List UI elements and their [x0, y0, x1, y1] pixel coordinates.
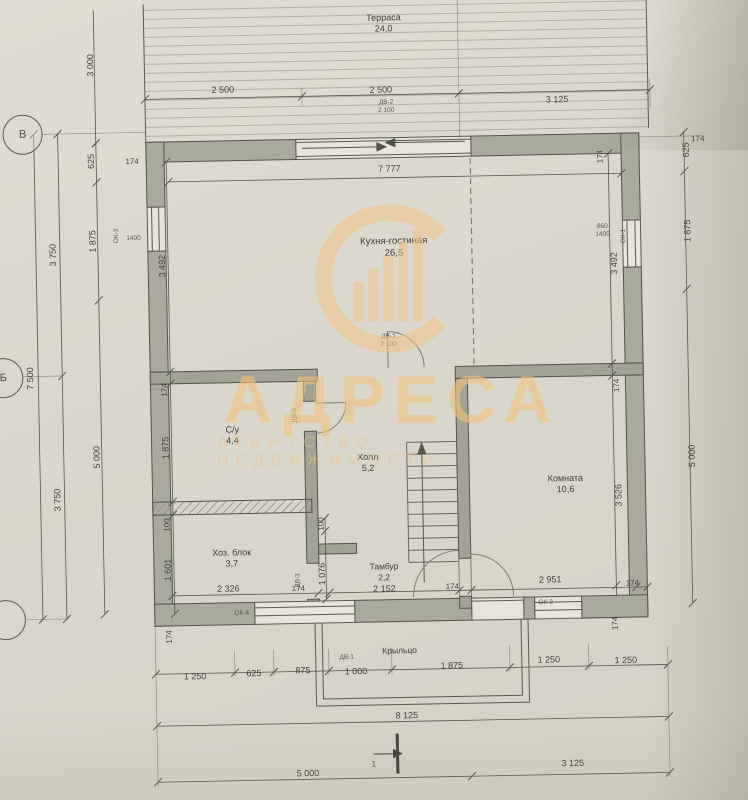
dimension-label: 100 — [316, 517, 325, 531]
dimension-label: 1 250 — [614, 655, 637, 666]
dimension-label: 1 875 — [87, 230, 98, 253]
dimension-label: 5 000 — [687, 445, 698, 468]
room-area: 4,4 — [226, 436, 240, 448]
opening-tag-label: 860 — [597, 223, 608, 231]
opening-tag-label: ДВ-3 — [291, 408, 299, 423]
dimension-label: 174 — [165, 630, 174, 644]
room-area: 26,5 — [360, 247, 427, 260]
dimension-label: 1 — [371, 759, 376, 768]
opening-tag-label: ОК-4 — [234, 610, 249, 618]
opening-tag-label: 2 100 — [380, 341, 396, 349]
opening-tag-label: ДВ-1 — [381, 333, 396, 341]
room-name: Крыльцо — [382, 645, 417, 656]
room-label: Комната10,6 — [548, 473, 584, 496]
dimension-label: 174 — [691, 134, 705, 143]
dimension-label: 1 250 — [537, 654, 560, 665]
dimension-label: 1 875 — [682, 220, 693, 243]
floorplan-photo: 2 5002 5003 1253 0007 7777 5003 7503 750… — [0, 0, 748, 800]
stairs-direction-arrow — [418, 443, 429, 582]
room-name: Комната — [548, 473, 583, 485]
room-label: Кухня-гостиная26,5 — [360, 235, 428, 260]
room-area: 24,0 — [366, 23, 401, 35]
dimension-label: 174 — [612, 379, 621, 393]
dimension-label: 3 492 — [157, 255, 168, 278]
dimension-label: 3 492 — [609, 252, 620, 275]
dimension-label: 3 750 — [48, 244, 59, 267]
dimension-label: 625 — [681, 142, 692, 157]
dimension-label: 174 — [595, 150, 604, 164]
dimension-label: 625 — [86, 154, 97, 169]
room-area: 10,6 — [548, 484, 583, 496]
room-name: Кухня-гостиная — [360, 235, 427, 248]
opening-tag-label: 1400 — [126, 235, 141, 243]
dimension-label: 1 875 — [441, 660, 464, 671]
dimension-label: 5 000 — [297, 768, 320, 779]
dimension-label: 3 125 — [561, 758, 584, 769]
room-label: Хоз. блок3,7 — [212, 547, 251, 570]
room-label: Холл5,2 — [357, 452, 379, 475]
section-mark — [373, 734, 402, 775]
dimension-label: 2 326 — [217, 583, 240, 594]
room-area: 2,2 — [370, 572, 399, 583]
dimension-label: 3 750 — [52, 489, 63, 512]
opening-tag-label: ОК-2 — [538, 599, 553, 607]
dimension-label: 2 500 — [211, 84, 234, 95]
room-name: Холл — [357, 452, 378, 464]
partition-hatched-wall — [153, 499, 312, 515]
opening-tag-label: ДВ-1 — [339, 654, 354, 662]
room-area: 3,7 — [212, 558, 251, 570]
opening-tag-label: ДВ-3 — [294, 573, 302, 588]
dimension-label: 3 526 — [613, 484, 624, 507]
dimension-label: 174 — [160, 383, 169, 397]
dimension-label: 5 000 — [91, 446, 102, 469]
dimension-label: 174 — [610, 617, 619, 631]
dimension-label: 100 — [162, 518, 171, 532]
room-name: Терраса — [366, 12, 401, 24]
porch-outline — [315, 619, 530, 706]
opening-tag-label: ОК-3 — [113, 229, 121, 244]
dimension-label: 8 125 — [395, 710, 418, 721]
room-name: Тамбур — [369, 561, 398, 572]
room-area: 5,2 — [357, 463, 378, 475]
opening-tag-label: ОК-1 — [620, 229, 628, 244]
zone-dashed-line — [470, 158, 474, 366]
dimension-label: 7 777 — [378, 163, 401, 174]
dimension-label: 2 951 — [539, 574, 562, 585]
room-name: С/у — [225, 424, 239, 436]
dimension-label: 1 000 — [345, 666, 368, 677]
dimension-label: 7 500 — [25, 367, 36, 390]
room-label: Крыльцо — [382, 645, 417, 656]
staircase — [407, 441, 459, 562]
room-label: Терраса24,0 — [366, 12, 401, 35]
room-name: Хоз. блок — [212, 547, 251, 559]
dimension-label: 2 500 — [369, 84, 392, 95]
dimension-label: 1 076 — [317, 563, 328, 586]
dimension-label: 1 250 — [184, 671, 207, 682]
room-label: Тамбур2,2 — [369, 561, 398, 583]
dimension-label: 3 125 — [546, 94, 569, 105]
dimension-label: 174 — [446, 582, 460, 591]
dimension-label: 1 601 — [163, 559, 174, 582]
dimension-label: 174 — [125, 157, 139, 166]
dimension-label: 2 152 — [373, 583, 396, 594]
floorplan-drawing: 2 5002 5003 1253 0007 7777 5003 7503 750… — [0, 0, 748, 800]
dimension-label: 875 — [295, 665, 310, 676]
dimension-label: 625 — [246, 668, 261, 679]
room-label: С/у4,4 — [225, 424, 239, 447]
opening-tag-label: 2 100 — [378, 107, 394, 115]
dimension-label: 174 — [626, 578, 640, 587]
dimension-label: 1 875 — [160, 437, 171, 460]
opening-tag-label: 1400 — [595, 231, 610, 239]
dimension-label: 3 000 — [85, 54, 96, 77]
opening-tag-label: ДВ-2 — [379, 99, 394, 107]
floorplan-linework — [0, 0, 748, 800]
